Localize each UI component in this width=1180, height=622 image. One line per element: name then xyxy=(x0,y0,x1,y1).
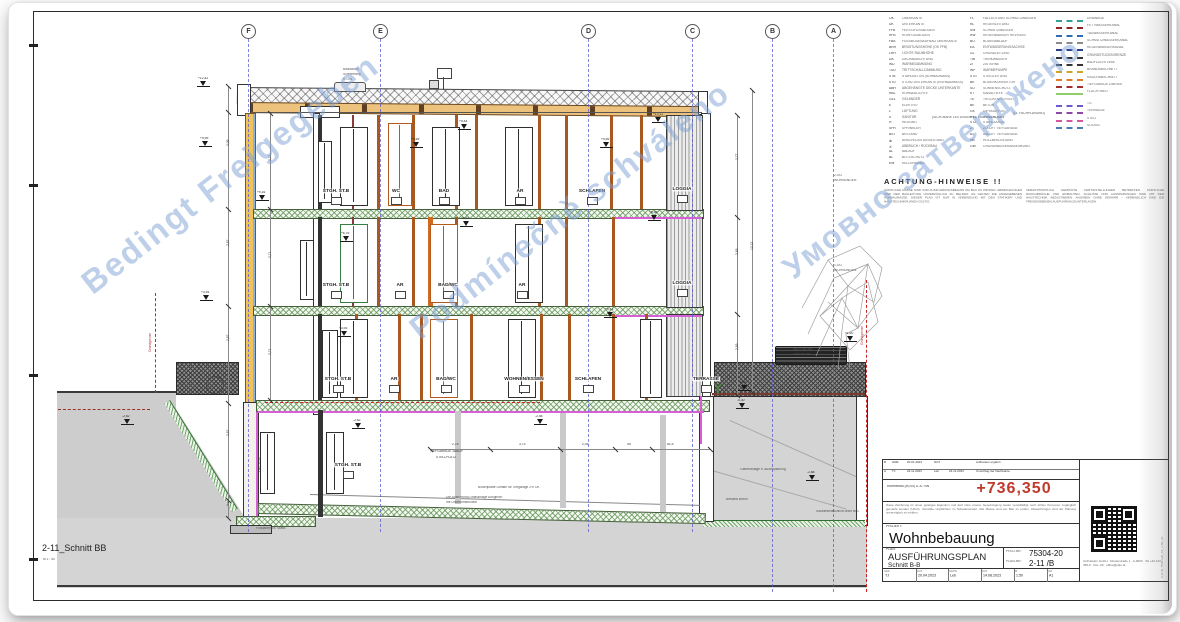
structural-post xyxy=(568,314,571,400)
level-flag-value: +9,99 xyxy=(200,137,208,140)
legend-code: WP xyxy=(970,69,975,72)
level-flag-line xyxy=(534,424,547,425)
level-flag-line xyxy=(844,341,857,342)
room-label: STGH. ST.B xyxy=(334,463,362,468)
terrace-base xyxy=(703,520,865,527)
divider xyxy=(1079,460,1080,581)
legend-label: HEIZUNG xyxy=(902,121,917,124)
legend-code: L xyxy=(889,110,891,113)
legend-code: UK xyxy=(889,23,894,26)
room-number-chip xyxy=(331,291,342,299)
legend-label: WÄRMEDÄMMUNG xyxy=(902,63,932,66)
revision-cell: Leb xyxy=(934,470,939,473)
legend-code: OK xyxy=(889,17,894,20)
plant-icon xyxy=(712,381,724,395)
signature-cell-value: 14.08.2023 xyxy=(983,574,1001,578)
window xyxy=(318,141,332,203)
plannr-label: PLAN-NR: xyxy=(1006,560,1021,564)
legend-label: BODENABLAUF xyxy=(983,40,1008,43)
dim-label: 2,76 xyxy=(452,443,458,446)
room-label: LOGGIA xyxy=(672,281,693,286)
annotation: Die Ausführung Drainanlage Ausgleich xyxy=(446,496,502,499)
level-flag-marker xyxy=(741,385,747,390)
ground-bottom-line xyxy=(57,585,867,587)
level-flag-line xyxy=(121,424,134,425)
room-number-chip xyxy=(395,291,406,299)
legend-code: SW xyxy=(970,29,975,32)
window xyxy=(388,123,412,206)
room-label: STGH. ST.B xyxy=(324,377,352,382)
room-label: AR xyxy=(516,189,525,194)
legend-code: GL xyxy=(970,52,974,55)
fold-mark xyxy=(29,44,38,47)
structural-post xyxy=(412,115,415,209)
legend-label: BESTAND xyxy=(902,133,917,136)
legend-label: ZISTERNE xyxy=(983,63,999,66)
room-number-chip xyxy=(515,197,526,205)
plannr-value: 2-11 /B xyxy=(1029,559,1054,568)
annotation: Bestand Beton xyxy=(726,498,748,501)
detail-bubble xyxy=(206,376,224,394)
legend-label: TRINKWASSER xyxy=(983,58,1007,61)
level-flag-value: +9,59 xyxy=(411,138,419,141)
level-flag-value: +3,93 xyxy=(339,327,347,330)
revision-cell: 24.11.2023 xyxy=(907,470,922,473)
level-flag-marker xyxy=(607,312,613,317)
legend-label: DACHABDICHTUNG xyxy=(902,58,933,61)
legend-code: STU xyxy=(889,81,896,84)
room-number-chip xyxy=(519,385,530,393)
legend-label: ENTWÄSSERUNGSACHSE xyxy=(983,46,1025,49)
window-mullion xyxy=(329,332,330,394)
room-number-chip xyxy=(441,385,452,393)
level-flag-marker xyxy=(202,141,208,146)
project-label: PROJEKT: xyxy=(886,525,902,529)
disclaimer: Diese Zeichnung ist unser geistiges Eige… xyxy=(886,504,1076,515)
level-flag-line xyxy=(199,146,212,147)
level-flag-line xyxy=(338,336,351,337)
legend-line-sample xyxy=(1056,93,1083,95)
dim-label: 2,87 xyxy=(227,240,230,246)
structural-post xyxy=(538,115,541,209)
level-flag-value: -2,88 xyxy=(807,471,815,474)
legend-label: STURZ UNTERKANTE (ROHBAUMASS) xyxy=(902,81,963,84)
legend-label: STAHLBETON (ROHBAUMASS) xyxy=(902,75,950,78)
signature-cell-label: GEZ. xyxy=(884,570,890,573)
signature-cell-label: GEPR. xyxy=(949,570,957,573)
room-number-chip xyxy=(517,291,528,299)
window-mullion xyxy=(353,226,354,299)
legend-code: LRH xyxy=(889,52,896,55)
signature-cell-label: DAT. xyxy=(917,570,923,573)
annotation: Grundgrenze xyxy=(149,333,152,352)
legend-code: S xyxy=(889,116,891,119)
room-number-chip xyxy=(439,197,450,205)
level-flag-value: +6,58 xyxy=(649,211,657,214)
level-flag-value: +3,73 xyxy=(605,308,613,311)
room-number-chip xyxy=(583,385,594,393)
legend-code: RFB xyxy=(889,34,896,37)
grid-bubble-F: F xyxy=(241,24,256,39)
legend-code: BO xyxy=(970,40,975,43)
legend-code: SPR xyxy=(889,127,896,130)
level-flag-line xyxy=(736,408,749,409)
qr-finder xyxy=(1121,507,1136,522)
legend-label: LICHTE RAUMHÖHE xyxy=(902,52,934,55)
window xyxy=(640,319,662,398)
grid-bubble-A: A xyxy=(826,24,841,39)
room-label: AR xyxy=(518,283,527,288)
legend-line-label: TERRASSE xyxy=(1087,109,1105,112)
revision-cell: GRE xyxy=(892,461,899,464)
room-number-chip xyxy=(389,385,400,393)
legend-label: GRUNDWASSERABSENKUNG xyxy=(983,145,1030,148)
legend-code: AL xyxy=(889,150,893,153)
structural-post xyxy=(560,413,566,508)
level-flag-line xyxy=(410,147,423,148)
structural-post xyxy=(470,314,473,400)
dim-label: 2,85 xyxy=(736,249,739,255)
legend-label: ABGEHÄNGTE DECKE UNTERKANTE xyxy=(902,87,960,90)
revision-table: BGRE20.01.2023NOTAufbauten ergänzt.ATJ24… xyxy=(883,460,1079,480)
annotation: Sauberkeitsschicht unter BPL xyxy=(816,510,859,513)
legend-code: ⊗ xyxy=(889,139,892,143)
revision-cell: Umschlag der Dachkante. xyxy=(976,470,1011,473)
level-flag-line xyxy=(806,480,819,481)
legend-code: TSD xyxy=(889,69,896,72)
legend-code: WD xyxy=(889,63,895,66)
legend-code: BST xyxy=(889,133,895,136)
window xyxy=(300,240,314,300)
level-flag-line xyxy=(604,317,617,318)
revision-cell: B xyxy=(884,461,886,464)
legend-line-sample xyxy=(1056,127,1083,129)
level-flag-marker xyxy=(603,142,609,147)
legend-code: TW xyxy=(970,58,975,61)
level-flag-value: -2,55 xyxy=(535,415,543,418)
structural-post xyxy=(412,217,415,306)
legend-label: ELEKTRO xyxy=(902,104,917,107)
legend-label: ROHFUSSBODEN xyxy=(902,34,930,37)
divider xyxy=(883,501,1079,502)
level-flag-marker xyxy=(355,423,361,428)
legend-line-label: STEG xyxy=(1087,117,1096,120)
level-flag-marker xyxy=(343,236,349,241)
room-label: BAD xyxy=(438,189,450,194)
legend-code: BRH xyxy=(889,46,896,49)
fold-mark xyxy=(29,184,38,187)
level-flag-line xyxy=(458,129,471,130)
legend-line-label: TG xyxy=(1087,102,1092,105)
dim-label: 2,71 xyxy=(269,349,272,355)
window-mullion xyxy=(353,129,354,202)
grid-bubble-B: B xyxy=(765,24,780,39)
level-flag-marker xyxy=(124,419,130,424)
qr-code xyxy=(1091,506,1137,552)
level-flag-line xyxy=(738,390,751,391)
legend-code: RL xyxy=(970,23,974,26)
revision-cell: NOT xyxy=(934,461,940,464)
legend-code: DA xyxy=(889,58,894,61)
loggia-band-eg xyxy=(666,314,703,397)
room-label: AR xyxy=(396,283,405,288)
level-flag-line xyxy=(197,86,210,87)
projnr-value: 75304-20 xyxy=(1029,549,1063,558)
legend-line-sample xyxy=(1056,86,1083,88)
legend-label: LÜFTUNG xyxy=(902,110,918,113)
legend-line-label: FETTWASSERKANAL xyxy=(1087,24,1120,27)
legend-label: SPRINKLER xyxy=(902,127,921,130)
level-flag-line xyxy=(648,220,661,221)
revision-cell: 24.11.2023 xyxy=(949,470,964,473)
room-number-chip xyxy=(391,197,402,205)
structural-post xyxy=(377,115,380,209)
signature-cell-value: 20.04.2023 xyxy=(918,574,936,578)
legend-code: SO xyxy=(970,87,975,90)
level-flag-value: -0,15 xyxy=(739,381,747,384)
legend-line-sample xyxy=(1056,20,1083,22)
structural-post xyxy=(612,314,615,400)
annotation: WOHNUNGEN xyxy=(834,179,856,182)
finish-line-magenta xyxy=(700,396,702,444)
level-flag-line xyxy=(352,428,365,429)
signature-cell-value: TJ xyxy=(885,574,889,578)
legend-code: BK xyxy=(970,81,974,84)
annotation: LIFT ST.B xyxy=(259,457,262,472)
dim-label: 3,05 xyxy=(227,140,230,146)
legend-label: WÄRMEPUMPE xyxy=(983,69,1007,72)
room-label: AR xyxy=(390,377,399,382)
room-number-chip xyxy=(701,385,712,393)
level-flag-marker xyxy=(259,195,265,200)
legend-code: FFB xyxy=(889,29,895,32)
roof-sign-post xyxy=(443,77,444,90)
level-flag-marker xyxy=(651,215,657,220)
annotation: OSV Nr. 85 xyxy=(793,353,810,356)
grid-line-D xyxy=(588,39,589,532)
annotation: Bodenplatte Gefälle für Tiefgarage 2% OK xyxy=(478,486,540,489)
room-label: TERRASSE xyxy=(692,377,720,382)
level-flag-marker xyxy=(537,419,543,424)
legend-line-sample xyxy=(1056,27,1083,29)
dim-label: 2,71 xyxy=(269,252,272,258)
legend-code: FL xyxy=(970,17,974,20)
legend-line-label: TIEFGARAGE UMRISS xyxy=(1087,83,1122,86)
room-number-chip xyxy=(677,195,688,203)
legend-line-label: DRAINAGE xyxy=(1087,17,1104,20)
dim-label: 2,05 xyxy=(582,443,588,446)
fold-mark xyxy=(29,374,38,377)
legend-label: FERTIGFUSSBODEN xyxy=(902,29,935,32)
room-number-chip xyxy=(343,471,354,479)
level-flag-marker xyxy=(463,221,469,226)
structural-post xyxy=(612,217,615,306)
room-label: BAD/WC xyxy=(435,377,456,382)
dim-label: 1,10 xyxy=(227,500,230,506)
legend-code: STG xyxy=(970,75,977,78)
level-flag-value: +6,61 xyxy=(461,217,469,220)
drawing-scale: M 1 : 50 xyxy=(43,558,55,562)
legend-code: GEL xyxy=(889,98,896,101)
legend-label: HOLZBEKLEIDUNG xyxy=(983,139,1013,142)
legend-line-sample xyxy=(1056,120,1083,122)
window xyxy=(340,127,368,206)
divider xyxy=(1003,547,1004,568)
room-number-chip xyxy=(333,385,344,393)
legend-code: ABH xyxy=(889,87,896,90)
legend-code: E xyxy=(889,104,891,107)
annotation: STELLPLATZ xyxy=(436,456,456,459)
grid-line-E xyxy=(380,39,381,532)
structural-post xyxy=(318,410,323,517)
office-address: Architekten GmbH · Musterstraße 1 · A-00… xyxy=(1083,560,1167,568)
ground-left-surface-line xyxy=(57,391,177,393)
structural-post xyxy=(377,217,380,306)
legend-line-label: TAUWASSERKANAL xyxy=(1087,32,1118,35)
qr-finder xyxy=(1092,536,1107,551)
level-flag-value: +9,44 xyxy=(459,120,467,123)
level-flag-line xyxy=(256,200,269,201)
dim-label: 82,5 xyxy=(667,443,673,446)
legend-label: FALLLEITUNG SCHMUTZWASSER xyxy=(983,17,1036,20)
legend-label: BRÜSTUNGSHÖHE (OK FFB) xyxy=(902,46,947,49)
qr-finder xyxy=(1092,507,1107,522)
structural-post xyxy=(475,115,478,209)
finish-line-magenta xyxy=(612,315,702,317)
window-mullion xyxy=(267,434,268,490)
level-flag-value: +6,76 xyxy=(341,232,349,235)
legend-line-label: GRUNDSTÜCKSGRENZE xyxy=(1087,54,1126,57)
signature-cell-label: M. xyxy=(1015,570,1018,573)
annotation: 2.OG xyxy=(834,174,842,177)
room-number-chip xyxy=(331,197,342,205)
room-label: SCHLAFEN xyxy=(574,377,602,382)
plot-side-text: 2-11-B_75304-20_AF_1-50_A1 xyxy=(1161,536,1165,578)
level-flag-marker xyxy=(203,295,209,300)
finish-line-magenta xyxy=(258,411,704,413)
legend-line-sample xyxy=(1056,112,1083,114)
dim-label: 45 xyxy=(627,443,631,446)
room-label: LOGGIA xyxy=(672,187,693,192)
legend-label: TRITTSCHALLDÄMMUNG xyxy=(902,69,942,72)
level-flag-value: +3,93 xyxy=(201,291,209,294)
legend-line-label: RAUCHABSCHNITT xyxy=(1087,76,1117,79)
level-flag-line xyxy=(200,300,213,301)
annotation: Gartenanlage lt. Außenplanung xyxy=(740,468,786,471)
legend-label: ROHBAULICHTE xyxy=(902,92,928,95)
level-flag-marker xyxy=(847,336,853,341)
legend-label: REGENWASSER REVISION xyxy=(983,34,1026,37)
screenshot-root: ACHTUNG-HINWEISE !! SÄMTLICHE MASSE SIND… xyxy=(0,0,1180,622)
room-label: STGH. ST.B xyxy=(322,283,350,288)
legend-line-sample xyxy=(1056,105,1083,107)
room-number-chip xyxy=(677,289,688,297)
level-flag-line xyxy=(340,241,353,242)
signature-cell-value: A1 xyxy=(1049,574,1053,578)
drawing-title: 2-11_Schnitt BB xyxy=(42,543,106,553)
window-mullion xyxy=(306,242,307,296)
legend-label: GRUNDLEITUNG xyxy=(983,52,1009,55)
legend-line-label: BRANDABSCHNITT xyxy=(1087,68,1117,71)
window-mullion xyxy=(353,321,354,394)
room-label: STGH. ST.B xyxy=(322,189,350,194)
dim-label: 2,85 xyxy=(736,344,739,350)
room-label: WOHNEN/ESSEN xyxy=(503,377,544,382)
title-block: BGRE20.01.2023NOTAufbauten ergänzt.ATJ24… xyxy=(882,459,1169,582)
grid-bubble-C: C xyxy=(685,24,700,39)
finish-line-magenta xyxy=(612,217,702,219)
revision-cell: 20.01.2023 xyxy=(907,461,922,464)
level-flag-value: +1,20 xyxy=(845,332,853,335)
level-flag-value: -2,62 xyxy=(353,419,361,422)
projnr-label: PROJ.NR: xyxy=(1006,550,1021,554)
signature-cell-label: DAT. xyxy=(982,570,988,573)
annotation: WOHNUNGEN xyxy=(834,269,856,272)
annotation: Grundgrenze xyxy=(861,326,864,345)
roof-vent xyxy=(429,80,439,89)
signature-cell-value: Leb xyxy=(950,574,956,578)
level-flag-marker xyxy=(809,475,815,480)
signature-row: GEZ.TJDAT.20.04.2023GEPR.LebDAT.14.08.20… xyxy=(883,568,1079,582)
legend-label: SANITÄR xyxy=(902,116,916,119)
level-flag-line xyxy=(460,226,473,227)
level-flag-marker xyxy=(200,81,206,86)
level-flag-marker xyxy=(341,331,347,336)
legend-code: H xyxy=(889,121,891,124)
level-flag-value: +9,59 xyxy=(601,138,609,141)
annotation: 1.OG xyxy=(834,264,842,267)
annotation: mit Unterkonstruktion xyxy=(446,501,477,504)
level-flag-marker xyxy=(461,124,467,129)
dim-label: 2,87 xyxy=(227,430,230,436)
signature-cell-value: 1:50 xyxy=(1016,574,1023,578)
structural-post xyxy=(660,415,666,512)
legend-line-label: SOCKEL xyxy=(1087,124,1100,127)
level-flag-value: -0,30 xyxy=(737,399,745,402)
revision-cell: Aufbauten ergänzt. xyxy=(976,461,1001,464)
legend-code: RW xyxy=(970,34,975,37)
legend-code: FBA xyxy=(889,40,895,43)
grid-line-B xyxy=(772,39,773,592)
notes-paragraph-2: VERANTWORTLICH GEPRÜFTE FERTIGSTELLUNGEN… xyxy=(1026,189,1164,204)
window xyxy=(432,127,460,206)
legend-code: STB xyxy=(889,75,895,78)
dim-label: 2,77 xyxy=(736,154,739,160)
level-flag-value: +9,16 xyxy=(257,191,265,194)
window-mullion xyxy=(650,321,651,394)
legend-line-label: BAUFLUCHTLINIE xyxy=(1087,61,1115,64)
legend-label: GELÄNDER xyxy=(902,98,920,101)
legend-label: FUSSBODENAUFBAU OBERKANTE xyxy=(902,40,957,43)
structural-post xyxy=(540,314,543,400)
level-flag-marker xyxy=(739,403,745,408)
datum-line-red xyxy=(265,402,540,403)
legend-label: REGENLEITUNG xyxy=(983,23,1009,26)
legend-code: KT xyxy=(970,92,974,95)
level-label: Rohfniveau (±0,00) ü. A.: NN xyxy=(887,485,929,489)
legend-code: RBL xyxy=(889,92,895,95)
divider xyxy=(883,547,1079,548)
fold-mark xyxy=(29,558,38,561)
legend-code: ✕ xyxy=(889,145,892,149)
datum-line-red xyxy=(58,409,150,410)
window xyxy=(505,127,533,206)
roof-sign xyxy=(437,68,452,79)
revision-cell: A xyxy=(884,470,886,473)
property-line-left xyxy=(155,293,156,393)
basement-wall-left xyxy=(243,402,259,520)
room-label: WC xyxy=(391,189,401,194)
